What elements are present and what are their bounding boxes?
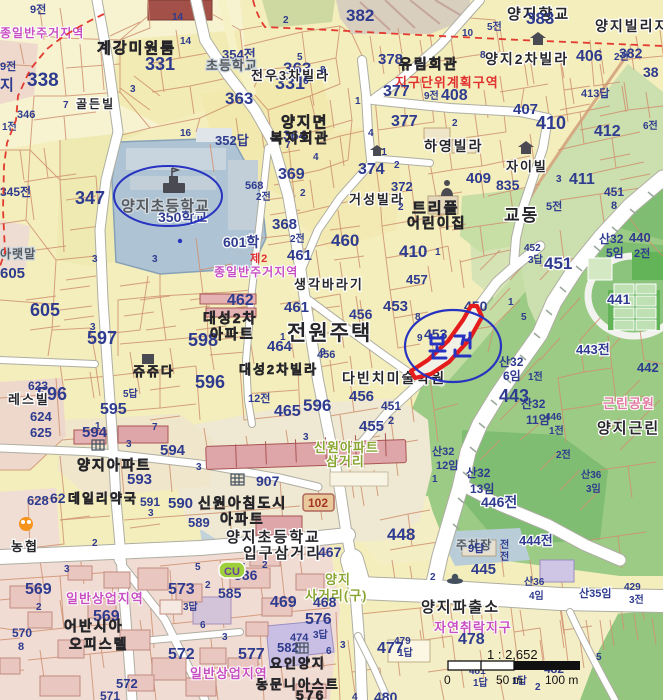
- svg-text:441: 441: [607, 291, 631, 307]
- svg-text:3답: 3답: [183, 601, 199, 613]
- svg-text:62: 62: [50, 490, 66, 506]
- svg-text:4임: 4임: [529, 589, 544, 602]
- svg-text:자이빌: 자이빌: [506, 159, 548, 174]
- svg-text:신원아침도시: 신원아침도시: [198, 495, 287, 511]
- svg-text:전우3차빌라: 전우3차빌라: [251, 68, 330, 83]
- svg-text:456: 456: [349, 388, 374, 405]
- svg-text:382: 382: [346, 6, 374, 25]
- svg-text:593: 593: [127, 471, 152, 488]
- svg-text:2전: 2전: [290, 232, 305, 245]
- svg-text:102: 102: [308, 496, 328, 510]
- svg-text:3: 3: [130, 84, 136, 95]
- svg-text:12임: 12임: [436, 459, 458, 472]
- svg-text:331: 331: [145, 54, 175, 74]
- svg-text:6: 6: [303, 76, 309, 87]
- svg-text:아파트: 아파트: [220, 511, 265, 527]
- svg-text:3: 3: [222, 632, 228, 643]
- svg-text:1: 1: [435, 247, 441, 258]
- svg-text:4: 4: [368, 128, 374, 139]
- svg-text:교동: 교동: [504, 206, 539, 225]
- svg-text:5: 5: [297, 52, 303, 63]
- svg-text:레스빌: 레스빌: [8, 392, 50, 407]
- svg-text:2전: 2전: [256, 190, 271, 203]
- svg-text:양지초등학교: 양지초등학교: [226, 529, 321, 546]
- svg-text:3: 3: [90, 322, 96, 333]
- svg-text:하영빌라: 하영빌라: [424, 138, 484, 154]
- svg-text:산32: 산32: [599, 231, 624, 246]
- svg-text:3: 3: [92, 254, 98, 265]
- svg-text:요인양지: 요인양지: [270, 656, 326, 671]
- svg-text:443전: 443전: [576, 342, 610, 357]
- svg-text:5: 5: [195, 562, 201, 573]
- svg-text:590: 590: [168, 495, 193, 512]
- svg-text:3: 3: [556, 174, 562, 185]
- svg-text:근린공원: 근린공원: [603, 396, 655, 411]
- svg-text:데일리약국: 데일리약국: [68, 491, 138, 506]
- svg-text:3: 3: [340, 640, 346, 651]
- svg-text:480: 480: [374, 689, 398, 700]
- svg-text:594: 594: [160, 442, 186, 459]
- svg-text:38: 38: [643, 64, 659, 80]
- svg-text:374: 374: [358, 161, 385, 178]
- svg-text:573: 573: [168, 581, 195, 598]
- svg-text:569: 569: [25, 581, 52, 598]
- svg-text:835: 835: [496, 177, 520, 193]
- svg-text:589: 589: [188, 515, 210, 530]
- svg-text:농협: 농협: [11, 539, 39, 554]
- svg-text:삼거리: 삼거리: [326, 454, 365, 469]
- svg-text:7: 7: [63, 100, 69, 111]
- svg-text:3: 3: [303, 432, 309, 443]
- svg-text:CU: CU: [224, 566, 240, 578]
- svg-text:종일반주거지역: 종일반주거지역: [0, 25, 84, 40]
- svg-text:12전: 12전: [248, 391, 270, 405]
- svg-text:465: 465: [274, 403, 301, 420]
- svg-text:대성2차: 대성2차: [203, 310, 257, 326]
- svg-text:623: 623: [28, 379, 48, 393]
- svg-text:407: 407: [513, 101, 538, 118]
- svg-text:338: 338: [27, 70, 59, 91]
- svg-text:5임: 5임: [606, 246, 624, 260]
- svg-text:전: 전: [500, 550, 509, 563]
- svg-text:346: 346: [17, 109, 35, 121]
- svg-text:5전: 5전: [546, 199, 562, 213]
- svg-text:2: 2: [36, 602, 42, 613]
- svg-text:446: 446: [545, 412, 562, 423]
- svg-text:종일반주거지역: 종일반주거지역: [214, 264, 298, 279]
- svg-text:2: 2: [300, 188, 306, 199]
- svg-text:605: 605: [30, 300, 60, 320]
- svg-text:5: 5: [521, 312, 527, 323]
- svg-text:442: 442: [637, 360, 659, 375]
- svg-text:369: 369: [278, 166, 305, 183]
- svg-text:일반상업지역: 일반상업지역: [66, 591, 144, 606]
- svg-text:451: 451: [544, 254, 572, 273]
- svg-text:어린이집: 어린이집: [407, 215, 467, 231]
- svg-text:3: 3: [196, 462, 202, 473]
- svg-text:412: 412: [594, 123, 621, 140]
- svg-text:양지2차빌라: 양지2차빌라: [485, 51, 569, 67]
- svg-text:907: 907: [256, 473, 280, 489]
- svg-text:570: 570: [12, 626, 32, 640]
- svg-text:585: 585: [218, 585, 242, 601]
- svg-text:1: 1: [280, 332, 286, 343]
- svg-text:산32: 산32: [521, 396, 546, 411]
- svg-text:7: 7: [285, 140, 291, 151]
- svg-text:일반상업지역: 일반상업지역: [190, 666, 268, 681]
- svg-text:0: 0: [444, 673, 451, 687]
- svg-text:쥬쥬다: 쥬쥬다: [133, 364, 175, 379]
- svg-text:2: 2: [283, 15, 289, 26]
- svg-text:3: 3: [152, 254, 158, 265]
- svg-text:2전: 2전: [634, 246, 650, 260]
- svg-text:377: 377: [383, 83, 410, 100]
- svg-text:2: 2: [398, 202, 404, 213]
- svg-text:4: 4: [313, 152, 319, 163]
- svg-text:3: 3: [64, 564, 70, 575]
- svg-text:345전: 345전: [0, 184, 31, 199]
- svg-text:444전: 444전: [519, 533, 553, 548]
- svg-text:2: 2: [388, 415, 394, 427]
- svg-text:3답: 3답: [528, 254, 544, 266]
- svg-text:유림회관: 유림회관: [399, 56, 459, 72]
- svg-text:571: 571: [100, 689, 120, 700]
- svg-text:양지아파트: 양지아파트: [77, 457, 151, 473]
- svg-text:457: 457: [406, 272, 428, 287]
- svg-text:568: 568: [245, 180, 263, 192]
- svg-text:9: 9: [320, 347, 326, 358]
- svg-text:2: 2: [535, 682, 541, 693]
- svg-text:3: 3: [148, 508, 154, 519]
- svg-text:14: 14: [180, 36, 192, 47]
- svg-text:6: 6: [200, 620, 206, 631]
- svg-text:479: 479: [394, 636, 411, 647]
- svg-text:1: 1: [432, 474, 438, 485]
- svg-text:입구삼거리: 입구삼거리: [243, 545, 322, 562]
- svg-text:478: 478: [458, 631, 485, 648]
- svg-text:411: 411: [569, 171, 595, 188]
- svg-text:596: 596: [195, 372, 225, 392]
- svg-text:452: 452: [524, 243, 541, 254]
- svg-text:572: 572: [168, 646, 195, 663]
- svg-text:1답: 1답: [473, 677, 489, 689]
- svg-text:409: 409: [466, 170, 491, 187]
- svg-text:2: 2: [92, 538, 98, 549]
- svg-text:9답: 9답: [468, 541, 484, 555]
- svg-text:628: 628: [27, 493, 49, 508]
- svg-text:445: 445: [471, 561, 496, 578]
- svg-text:양지빌리지: 양지빌리지: [595, 18, 663, 34]
- svg-text:산35임: 산35임: [579, 586, 611, 600]
- svg-text:461: 461: [287, 247, 312, 264]
- svg-text:2전: 2전: [614, 50, 629, 63]
- svg-text:6임: 6임: [503, 369, 521, 383]
- svg-text:413답: 413답: [581, 86, 609, 100]
- svg-text:596: 596: [303, 396, 331, 415]
- svg-text:3답: 3답: [313, 629, 329, 641]
- svg-text:신원아파트: 신원아파트: [314, 440, 379, 455]
- svg-text:1답: 1답: [398, 647, 414, 659]
- svg-text:14: 14: [172, 12, 184, 23]
- svg-text:100 m: 100 m: [545, 673, 578, 687]
- svg-text:467: 467: [318, 544, 342, 560]
- svg-text:양지: 양지: [325, 572, 351, 587]
- svg-text:3전: 3전: [629, 593, 644, 606]
- svg-text:2: 2: [430, 572, 436, 583]
- svg-text:오피스텔: 오피스텔: [69, 636, 129, 652]
- svg-text:8: 8: [480, 50, 486, 61]
- svg-text:1 : 2,652: 1 : 2,652: [487, 647, 538, 662]
- svg-text:산32: 산32: [466, 465, 491, 480]
- svg-text:456: 456: [349, 306, 373, 322]
- svg-text:대성2차빌라: 대성2차빌라: [239, 362, 318, 377]
- svg-text:453: 453: [383, 298, 408, 315]
- svg-text:461: 461: [284, 299, 309, 316]
- svg-text:1: 1: [95, 421, 101, 432]
- svg-text:429: 429: [624, 582, 641, 593]
- svg-text:6전: 6전: [643, 119, 658, 132]
- svg-text:양지근린: 양지근린: [597, 419, 660, 437]
- svg-text:5: 5: [596, 652, 602, 663]
- svg-text:계강미원룸: 계강미원룸: [97, 39, 176, 57]
- svg-text:8: 8: [18, 641, 24, 653]
- svg-text:2: 2: [394, 160, 400, 171]
- svg-text:9전: 9전: [30, 2, 46, 16]
- svg-text:440: 440: [629, 230, 651, 245]
- svg-text:448: 448: [387, 525, 415, 544]
- svg-text:50 m: 50 m: [496, 673, 523, 687]
- svg-text:368: 368: [272, 216, 297, 233]
- svg-text:3: 3: [126, 439, 132, 450]
- svg-text:595: 595: [100, 401, 127, 418]
- svg-text:347: 347: [75, 188, 105, 208]
- svg-text:9: 9: [417, 333, 423, 344]
- svg-text:산32: 산32: [499, 354, 524, 369]
- svg-text:406: 406: [576, 48, 603, 65]
- svg-text:2: 2: [205, 580, 211, 591]
- svg-text:363: 363: [225, 89, 253, 108]
- svg-text:골든빌: 골든빌: [76, 96, 115, 111]
- svg-text:462: 462: [227, 292, 254, 309]
- svg-text:451: 451: [381, 399, 401, 413]
- svg-text:4: 4: [352, 692, 358, 700]
- svg-text:408: 408: [441, 87, 468, 104]
- svg-text:446전: 446전: [481, 494, 517, 510]
- svg-text:8: 8: [320, 65, 326, 76]
- svg-text:2: 2: [262, 560, 268, 571]
- svg-text:625: 625: [30, 425, 52, 440]
- svg-text:468: 468: [313, 594, 337, 610]
- svg-text:377: 377: [391, 113, 418, 130]
- svg-text:383: 383: [526, 9, 554, 28]
- svg-text:5전: 5전: [487, 20, 502, 33]
- svg-text:5답: 5답: [123, 388, 139, 400]
- svg-text:352답: 352답: [215, 133, 249, 148]
- svg-text:7: 7: [152, 422, 158, 433]
- svg-text:아파트: 아파트: [210, 326, 255, 342]
- svg-text:469: 469: [270, 594, 297, 611]
- svg-text:산32: 산32: [432, 444, 454, 458]
- svg-text:전원주택: 전원주택: [287, 322, 372, 345]
- svg-text:지: 지: [0, 77, 14, 94]
- svg-text:산36: 산36: [524, 575, 545, 588]
- svg-text:601학: 601학: [223, 234, 259, 250]
- svg-text:591: 591: [140, 495, 160, 509]
- svg-text:양지초등학교: 양지초등학교: [121, 198, 210, 215]
- svg-text:제2: 제2: [250, 251, 268, 265]
- svg-text:1: 1: [355, 96, 361, 107]
- svg-text:몽문니아스트: 몽문니아스트: [256, 677, 340, 692]
- svg-text:9전: 9전: [0, 59, 16, 73]
- svg-text:2전: 2전: [556, 448, 571, 461]
- svg-text:2: 2: [452, 118, 458, 129]
- svg-text:605: 605: [0, 265, 25, 282]
- svg-text:460: 460: [331, 231, 359, 250]
- svg-text:산36: 산36: [581, 468, 602, 481]
- svg-text:1전: 1전: [549, 424, 564, 437]
- svg-text:양지파출소: 양지파출소: [421, 599, 500, 616]
- svg-text:3임: 3임: [586, 482, 601, 495]
- svg-text:577: 577: [238, 646, 265, 663]
- svg-text:6: 6: [326, 646, 332, 657]
- svg-text:복지회관: 복지회관: [270, 130, 330, 146]
- svg-text:1전: 1전: [528, 370, 543, 383]
- svg-text:474: 474: [290, 632, 309, 644]
- svg-text:576: 576: [305, 611, 332, 628]
- svg-text:9전: 9전: [424, 89, 439, 102]
- svg-text:455: 455: [359, 418, 384, 435]
- svg-text:16: 16: [180, 128, 192, 139]
- svg-text:1: 1: [508, 297, 514, 308]
- svg-text:624: 624: [30, 409, 52, 424]
- svg-text:어반시아: 어반시아: [64, 618, 124, 634]
- svg-text:451: 451: [604, 185, 624, 199]
- svg-text:생각바라기: 생각바라기: [294, 277, 364, 292]
- svg-text:전: 전: [500, 538, 509, 551]
- svg-text:410: 410: [536, 113, 566, 133]
- svg-text:410: 410: [399, 242, 427, 261]
- svg-text:8: 8: [611, 200, 617, 212]
- svg-text:거성빌라: 거성빌라: [349, 192, 405, 207]
